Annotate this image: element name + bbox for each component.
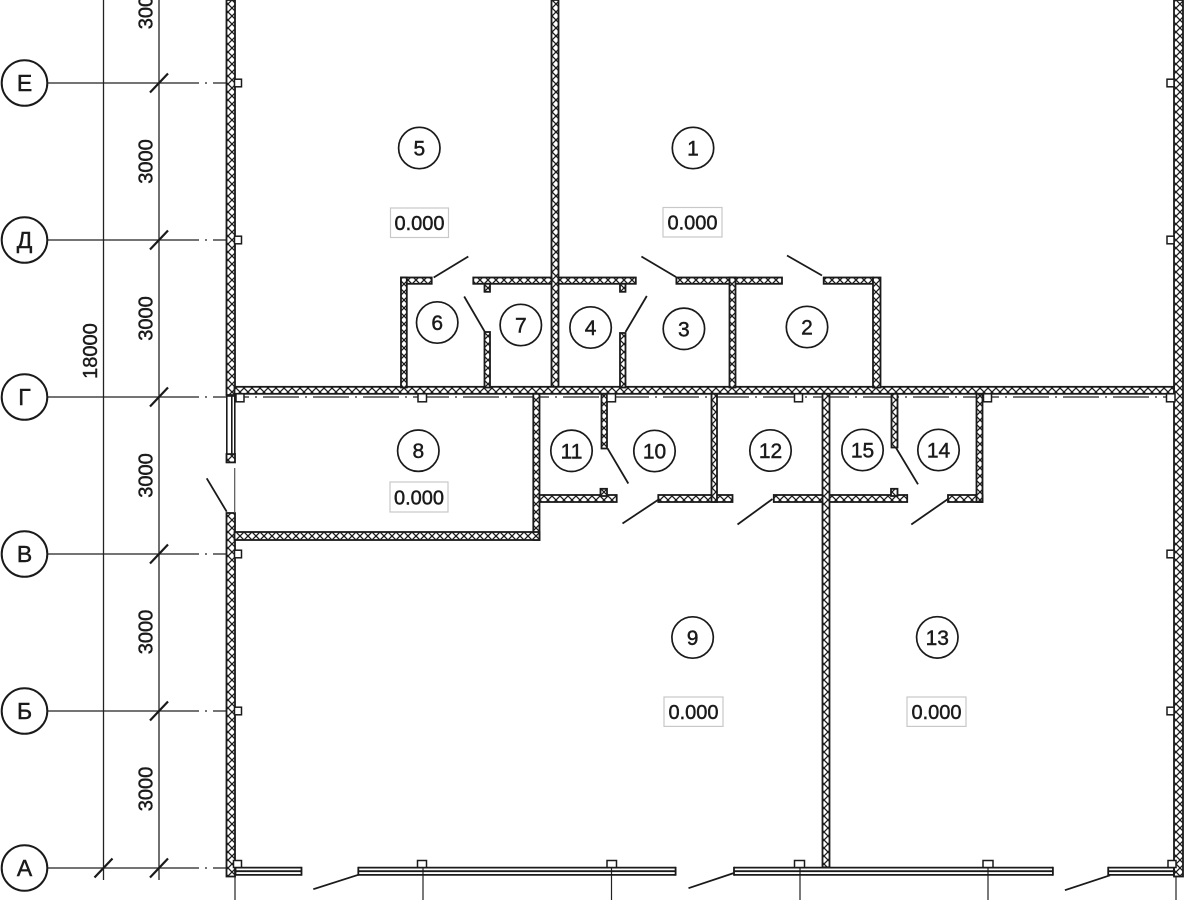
svg-text:3000: 3000 — [136, 767, 158, 812]
svg-text:6: 6 — [431, 312, 443, 335]
svg-text:Б: Б — [17, 698, 32, 724]
svg-text:В: В — [17, 541, 32, 567]
svg-text:2: 2 — [801, 317, 813, 340]
svg-text:9: 9 — [687, 627, 699, 650]
svg-text:13: 13 — [926, 627, 949, 650]
svg-text:3000: 3000 — [136, 610, 158, 655]
svg-text:7: 7 — [515, 315, 527, 338]
svg-text:0.000: 0.000 — [394, 213, 444, 235]
svg-text:Д: Д — [17, 227, 33, 253]
svg-text:3000: 3000 — [136, 296, 158, 341]
svg-text:18000: 18000 — [80, 323, 102, 379]
svg-text:3: 3 — [678, 318, 690, 341]
svg-text:0.000: 0.000 — [667, 213, 717, 235]
svg-text:3000: 3000 — [136, 0, 158, 29]
svg-text:1: 1 — [687, 138, 699, 161]
svg-text:8: 8 — [412, 440, 424, 463]
svg-text:11: 11 — [561, 440, 583, 463]
svg-text:4: 4 — [585, 317, 597, 340]
svg-text:12: 12 — [759, 440, 782, 463]
svg-text:15: 15 — [851, 440, 874, 463]
svg-text:5: 5 — [413, 138, 425, 161]
svg-text:3000: 3000 — [136, 139, 158, 184]
svg-text:14: 14 — [927, 440, 951, 463]
svg-text:Г: Г — [18, 384, 31, 410]
svg-text:0.000: 0.000 — [394, 487, 444, 509]
svg-text:3000: 3000 — [136, 453, 158, 498]
svg-text:А: А — [17, 855, 33, 881]
svg-text:0.000: 0.000 — [911, 702, 961, 724]
svg-text:0.000: 0.000 — [668, 702, 718, 724]
svg-text:Е: Е — [17, 70, 32, 96]
svg-text:10: 10 — [643, 441, 666, 464]
